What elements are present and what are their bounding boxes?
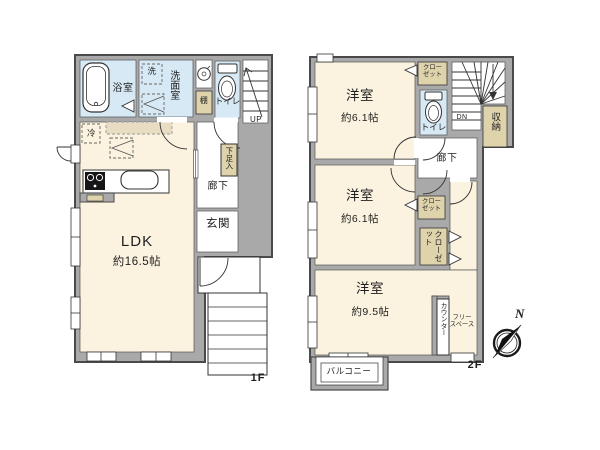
f2-closet2 xyxy=(418,196,445,219)
balcony xyxy=(311,357,388,390)
f2-hallway xyxy=(418,138,477,178)
compass-icon xyxy=(493,325,521,358)
f1-entrance xyxy=(197,211,238,252)
porch-steps xyxy=(198,257,267,375)
toilet-icon-2f xyxy=(425,92,442,123)
f1-washroom xyxy=(139,60,193,117)
f1-service-door xyxy=(57,145,80,163)
shoe-box xyxy=(221,144,237,176)
floorplan-canvas: 浴室 洗 洗面室 棚 トイレ UP 下足入 廊下 玄関 LDK 約16.5帖 冷… xyxy=(0,0,600,450)
bathtub-icon xyxy=(83,63,109,112)
f1-shelf xyxy=(196,91,212,114)
f2-closet3 xyxy=(420,228,447,265)
f2-storage xyxy=(483,106,507,147)
toilet-icon-1f xyxy=(218,64,237,100)
sink-icon xyxy=(121,171,158,189)
f2-room2 xyxy=(315,165,415,265)
f2-closet1 xyxy=(418,62,447,85)
floor1-plan xyxy=(57,55,272,375)
f1-ldk xyxy=(80,122,194,352)
floorplan-graphics xyxy=(0,0,600,450)
counter-icon xyxy=(432,296,449,355)
f2-room3 xyxy=(315,270,477,355)
floor2-plan xyxy=(308,54,521,390)
